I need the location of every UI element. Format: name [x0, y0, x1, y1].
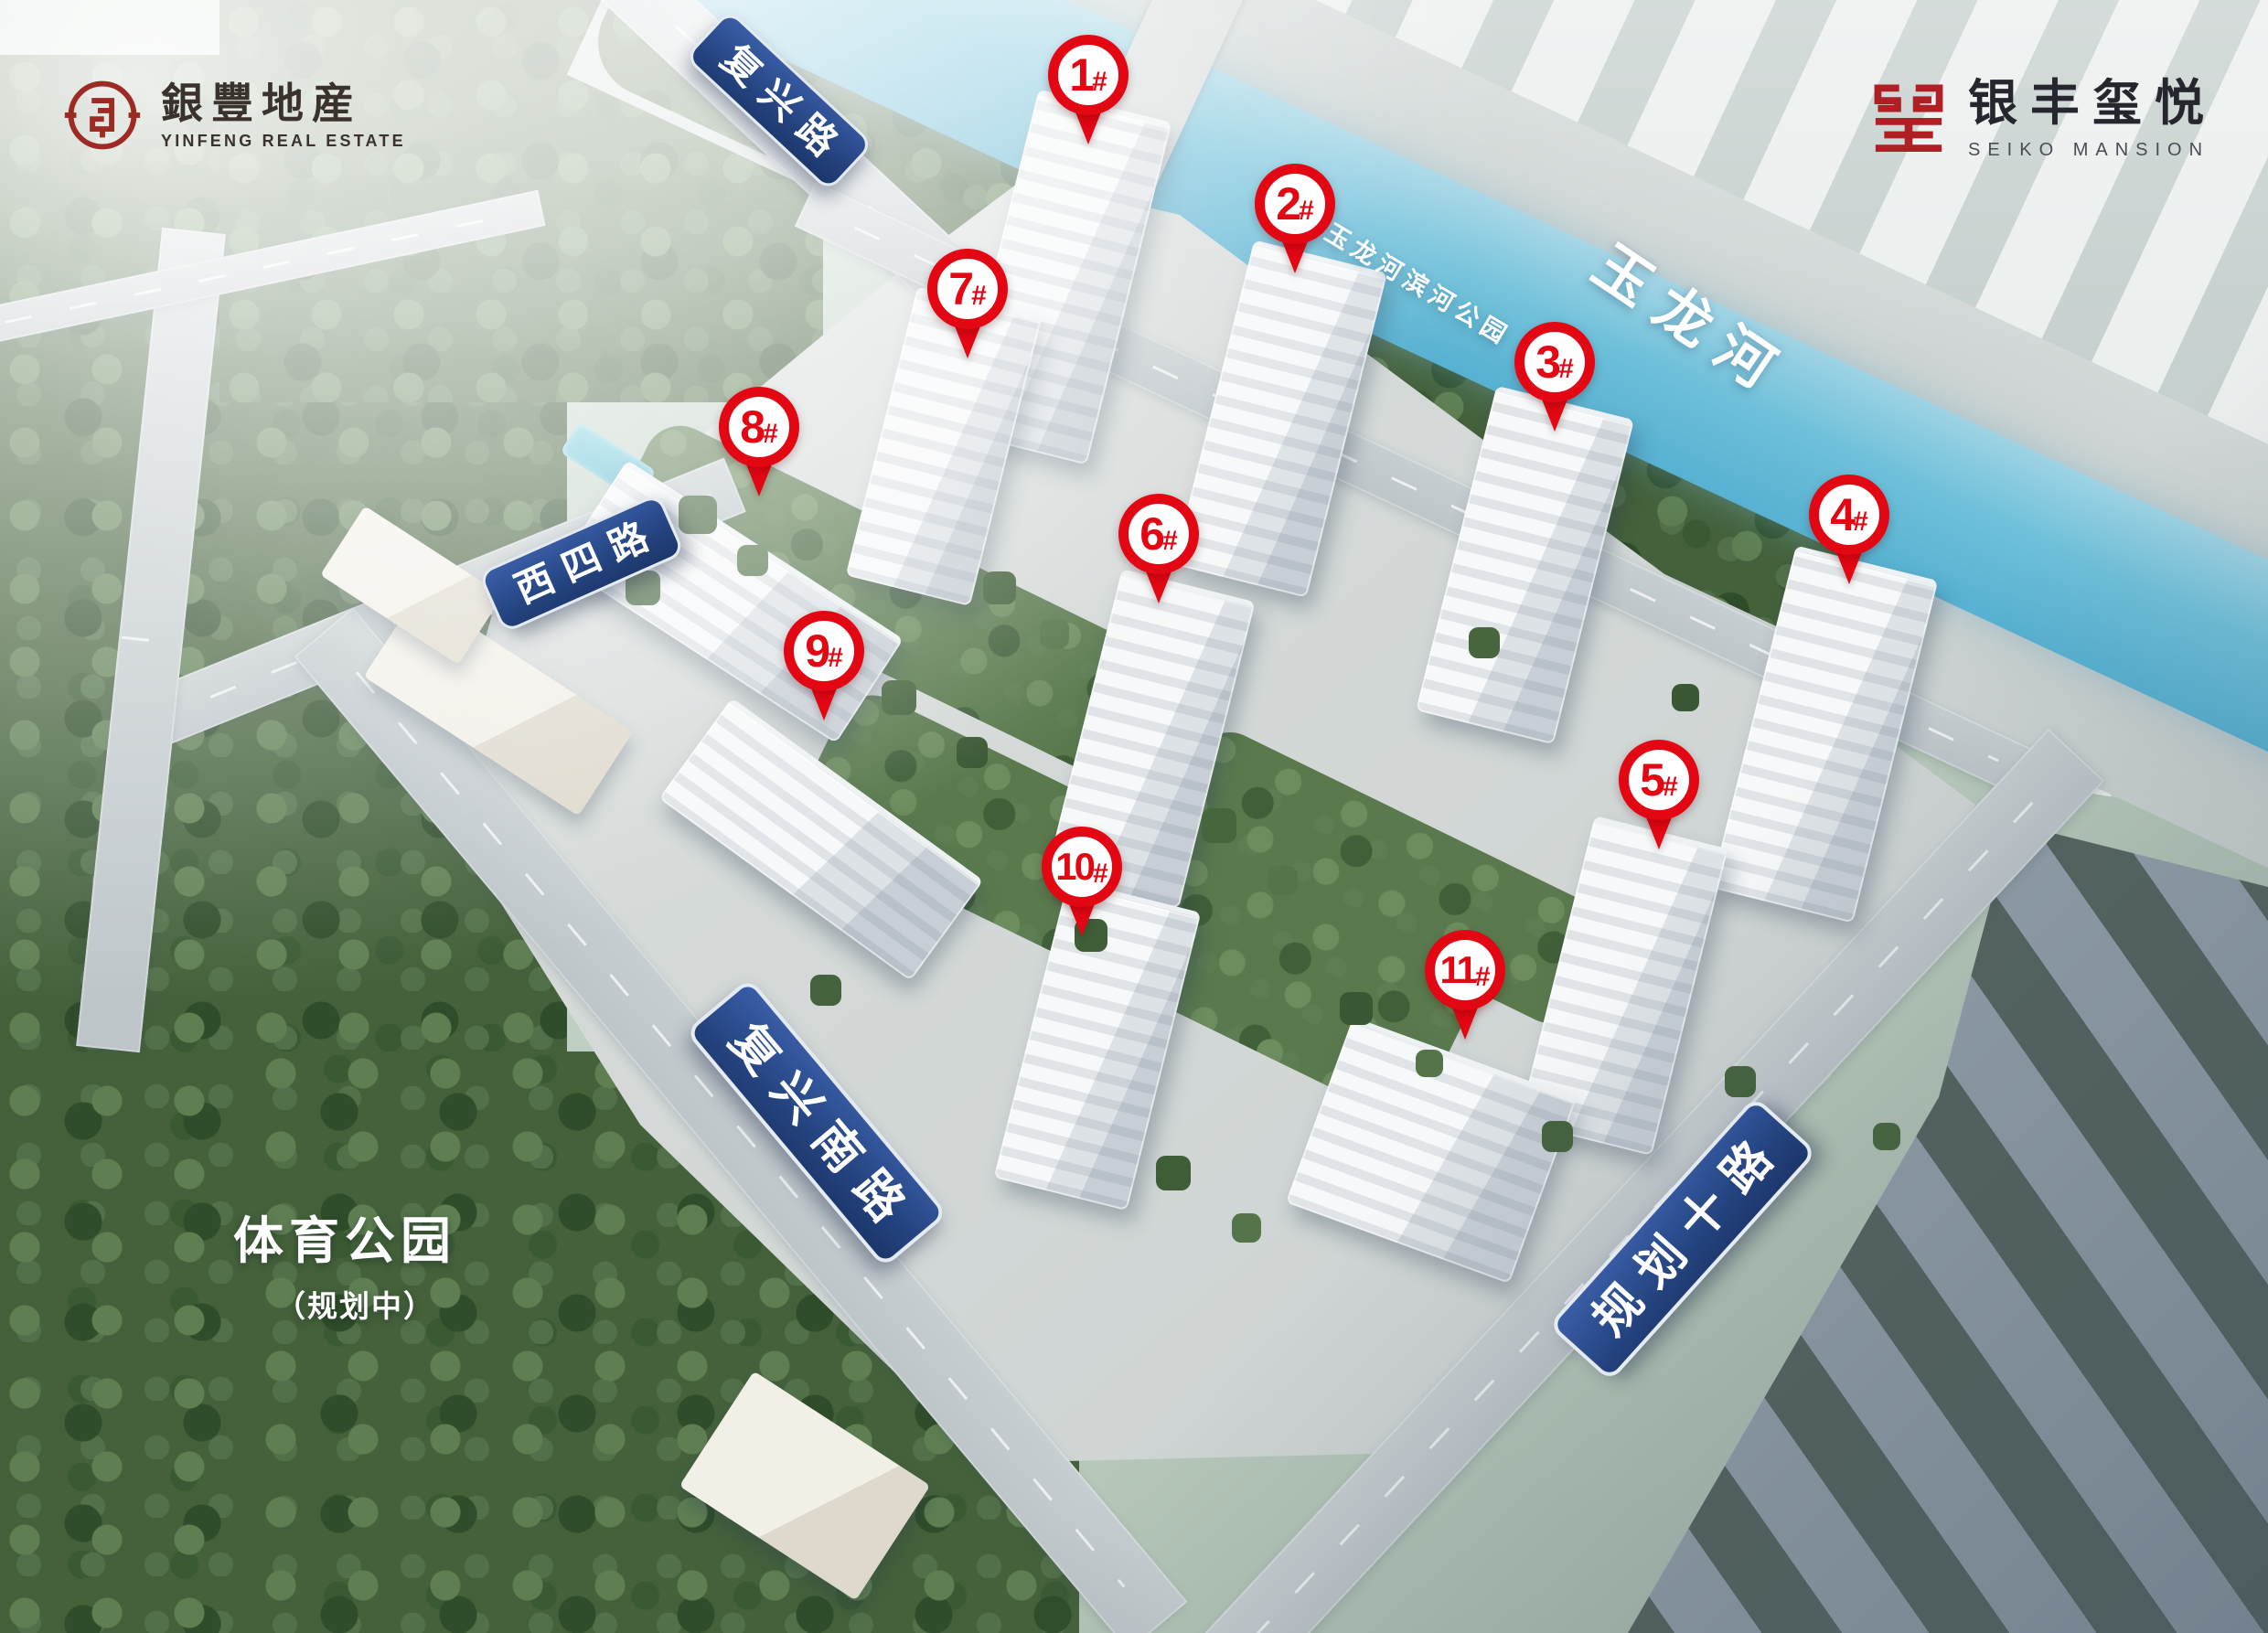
yinfeng-seal-icon	[64, 77, 141, 154]
building-marker-8[interactable]: 8#	[719, 387, 799, 467]
yinfeng-name-cn: 銀豐地産	[161, 82, 406, 124]
marker-circle: 5#	[1619, 740, 1699, 820]
marker-number: 2	[1276, 181, 1299, 227]
marker-number: 1	[1069, 52, 1092, 98]
marker-circle: 1#	[1048, 35, 1129, 115]
building-marker-4[interactable]: 4#	[1809, 475, 1889, 555]
marker-number: 8	[740, 404, 763, 450]
yinfeng-name-en: YINFENG REAL ESTATE	[161, 133, 406, 149]
site-plan-rendering: 玉龙河 玉龙河滨河公园 体育公园 （规划中） 复兴路 西四路 复兴南路 规划十路…	[0, 0, 2268, 1633]
seiko-mansion-name-cn: 银丰玺悦	[1968, 79, 2217, 128]
marker-number: 7	[948, 266, 971, 312]
seiko-mansion-logo: 银丰玺悦 SEIKO MANSION	[1869, 79, 2217, 159]
marker-hash-suffix: #	[1093, 859, 1108, 890]
building-marker-3[interactable]: 3#	[1514, 322, 1595, 402]
marker-number: 3	[1535, 339, 1558, 385]
building-marker-10[interactable]: 10#	[1042, 827, 1122, 907]
building-marker-5[interactable]: 5#	[1619, 740, 1699, 820]
building-marker-6[interactable]: 6#	[1118, 494, 1199, 574]
marker-circle: 7#	[927, 249, 1008, 329]
marker-circle: 6#	[1118, 494, 1199, 574]
marker-circle: 8#	[719, 387, 799, 467]
building-marker-1[interactable]: 1#	[1048, 35, 1129, 115]
building-marker-2[interactable]: 2#	[1255, 164, 1335, 244]
marker-number: 6	[1139, 511, 1162, 557]
marker-hash-suffix: #	[763, 419, 778, 450]
marker-circle: 4#	[1809, 475, 1889, 555]
marker-hash-suffix: #	[828, 643, 843, 674]
marker-hash-suffix: #	[971, 281, 987, 312]
marker-hash-suffix: #	[1663, 772, 1678, 803]
marker-hash-suffix: #	[1475, 962, 1491, 993]
marker-circle: 11#	[1425, 930, 1505, 1010]
marker-hash-suffix: #	[1558, 354, 1574, 385]
building-marker-9[interactable]: 9#	[784, 611, 864, 691]
marker-hash-suffix: #	[1092, 67, 1107, 98]
yinfeng-logo: 銀豐地産 YINFENG REAL ESTATE	[64, 77, 406, 154]
building-marker-11[interactable]: 11#	[1425, 930, 1505, 1010]
marker-hash-suffix: #	[1299, 196, 1314, 227]
marker-number: 4	[1830, 492, 1853, 538]
marker-hash-suffix: #	[1162, 526, 1178, 557]
marker-circle: 9#	[784, 611, 864, 691]
marker-number: 5	[1640, 757, 1663, 803]
marker-circle: 10#	[1042, 827, 1122, 907]
marker-number: 10	[1055, 848, 1093, 886]
building-marker-7[interactable]: 7#	[927, 249, 1008, 329]
yinfeng-logo-text: 銀豐地産 YINFENG REAL ESTATE	[161, 82, 406, 149]
seiko-mansion-name-en: SEIKO MANSION	[1968, 141, 2217, 159]
marker-number: 11	[1439, 951, 1474, 989]
marker-number: 9	[805, 628, 828, 674]
marker-circle: 2#	[1255, 164, 1335, 244]
seiko-mansion-seal-icon	[1869, 79, 1948, 157]
marker-circle: 3#	[1514, 322, 1595, 402]
building-markers-layer: 1#2#3#4#5#6#7#8#9#10#11#	[0, 0, 2268, 1633]
seiko-mansion-logo-text: 银丰玺悦 SEIKO MANSION	[1968, 79, 2217, 159]
marker-hash-suffix: #	[1853, 507, 1868, 538]
